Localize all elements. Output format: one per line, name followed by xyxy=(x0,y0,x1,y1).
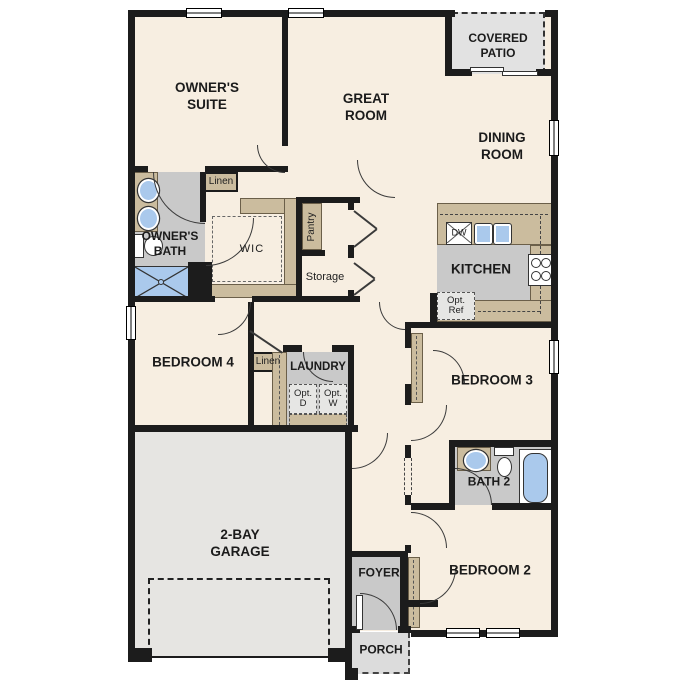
room-label-bath2: BATH 2 xyxy=(467,475,511,490)
wall xyxy=(128,425,358,432)
wall xyxy=(128,166,148,172)
wall xyxy=(405,445,411,458)
room-label-owners-bath: OWNER'S BATH xyxy=(127,229,213,259)
wall xyxy=(128,648,152,662)
wall xyxy=(445,10,452,76)
room-label-great-room: GREAT ROOM xyxy=(327,91,405,125)
room-label-wic: WIC xyxy=(222,243,282,257)
front-door-leaf xyxy=(356,595,363,630)
upper-cabinet-line xyxy=(440,214,548,215)
wall xyxy=(252,296,360,302)
room-label-bedroom4: BEDROOM 4 xyxy=(133,355,253,372)
room-label-foyer: FOYER xyxy=(349,566,409,581)
room-label-porch: PORCH xyxy=(351,643,411,658)
window xyxy=(186,8,222,18)
sink-icon xyxy=(138,207,159,230)
room-label-dining-room: DINING ROOM xyxy=(463,130,541,164)
wall xyxy=(411,503,455,510)
upper-cabinet-line xyxy=(478,311,540,312)
burner-icon xyxy=(541,258,551,268)
wall xyxy=(332,345,354,352)
sliding-door-panel xyxy=(502,71,538,76)
wall xyxy=(345,668,358,680)
wall xyxy=(345,432,352,558)
room-label-owners-suite: OWNER'S SUITE xyxy=(157,80,257,114)
wall xyxy=(282,17,288,146)
wall xyxy=(445,69,472,76)
wall xyxy=(128,296,215,302)
window xyxy=(549,340,559,374)
window xyxy=(126,306,136,340)
wall xyxy=(405,384,411,405)
kitchen-sink xyxy=(493,223,512,245)
label-opt-ref: Opt. Ref xyxy=(443,296,469,316)
wall xyxy=(411,630,558,637)
label-pantry: Pantry xyxy=(307,213,318,242)
label-opt-washer: Opt. W xyxy=(321,389,345,409)
garage-door-outline xyxy=(148,578,330,655)
wall xyxy=(348,290,354,302)
cased-opening xyxy=(404,458,412,495)
label-opt-dryer: Opt. D xyxy=(291,389,315,409)
sliding-door-panel xyxy=(470,67,504,72)
wall xyxy=(411,322,558,328)
bathtub-basin xyxy=(523,453,548,503)
room-label-garage: 2-BAY GARAGE xyxy=(197,527,283,561)
bedroom3-closet xyxy=(411,333,423,403)
kitchen-sink xyxy=(474,223,493,245)
wall xyxy=(400,551,408,630)
room-label-kitchen: KITCHEN xyxy=(426,262,536,279)
label-linen-hall: Linen xyxy=(256,357,280,368)
shower xyxy=(134,266,190,300)
label-dishwasher: DW xyxy=(452,228,467,237)
burner-icon xyxy=(541,271,551,281)
wall xyxy=(492,503,558,510)
wall xyxy=(348,197,354,210)
toilet-tank xyxy=(494,447,514,456)
room-label-laundry: LAUNDRY xyxy=(278,360,358,374)
room-label-bedroom2: BEDROOM 2 xyxy=(425,563,555,580)
window xyxy=(288,8,324,18)
wall xyxy=(449,440,558,447)
sink-icon xyxy=(464,450,488,471)
window xyxy=(446,628,480,638)
closet-rod-line xyxy=(416,336,417,400)
window xyxy=(486,628,520,638)
floor-plan: OWNER'S SUITE GREAT ROOM COVERED PATIO D… xyxy=(0,0,687,687)
bedroom2-closet xyxy=(408,557,420,628)
room-label-covered-patio: COVERED PATIO xyxy=(453,31,543,61)
window xyxy=(549,120,559,156)
wall xyxy=(296,250,325,256)
closet-rod-line xyxy=(413,560,414,625)
room-label-bedroom3: BEDROOM 3 xyxy=(427,373,557,390)
wall xyxy=(348,551,407,557)
wall xyxy=(283,345,302,352)
wall xyxy=(152,656,328,658)
label-linen-upper: Linen xyxy=(209,177,233,188)
label-storage: Storage xyxy=(306,272,345,284)
wall xyxy=(430,293,437,322)
